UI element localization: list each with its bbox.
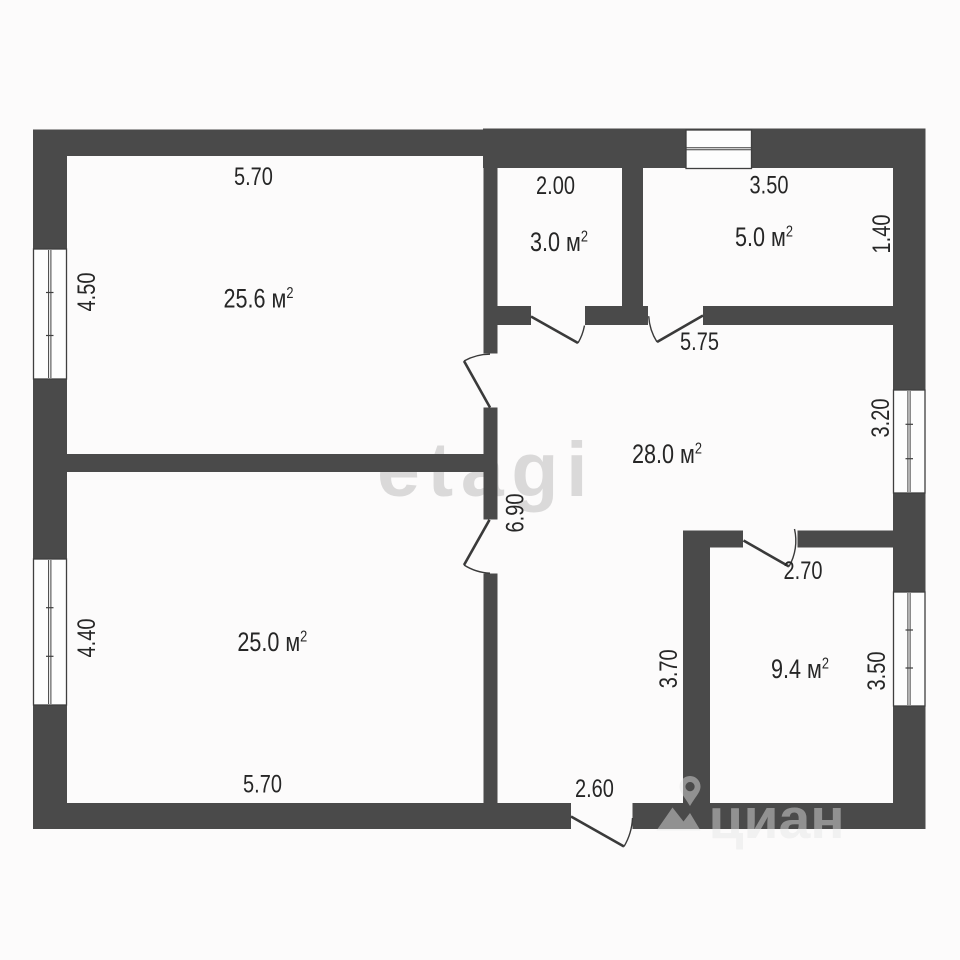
svg-text:28.0 м2: 28.0 м2 bbox=[632, 440, 702, 470]
svg-text:5.0 м2: 5.0 м2 bbox=[735, 223, 793, 253]
svg-text:5.70: 5.70 bbox=[243, 770, 282, 798]
svg-text:6.90: 6.90 bbox=[501, 494, 529, 533]
svg-text:5.75: 5.75 bbox=[680, 328, 719, 356]
svg-text:3.0 м2: 3.0 м2 bbox=[530, 228, 588, 258]
svg-text:2.60: 2.60 bbox=[575, 775, 614, 803]
svg-text:4.50: 4.50 bbox=[73, 273, 101, 312]
svg-text:циан: циан bbox=[709, 787, 845, 851]
svg-text:3.20: 3.20 bbox=[867, 399, 895, 438]
svg-text:3.50: 3.50 bbox=[750, 171, 789, 199]
svg-text:9.4 м2: 9.4 м2 bbox=[771, 655, 829, 685]
svg-text:2.00: 2.00 bbox=[536, 172, 575, 200]
svg-text:4.40: 4.40 bbox=[73, 619, 101, 658]
svg-text:1.40: 1.40 bbox=[868, 215, 896, 254]
svg-text:5.70: 5.70 bbox=[234, 163, 273, 191]
svg-text:25.0 м2: 25.0 м2 bbox=[237, 628, 307, 658]
svg-text:25.6 м2: 25.6 м2 bbox=[224, 284, 294, 314]
svg-text:3.70: 3.70 bbox=[655, 649, 683, 688]
svg-text:3.50: 3.50 bbox=[863, 652, 891, 691]
svg-text:2.70: 2.70 bbox=[784, 557, 823, 585]
